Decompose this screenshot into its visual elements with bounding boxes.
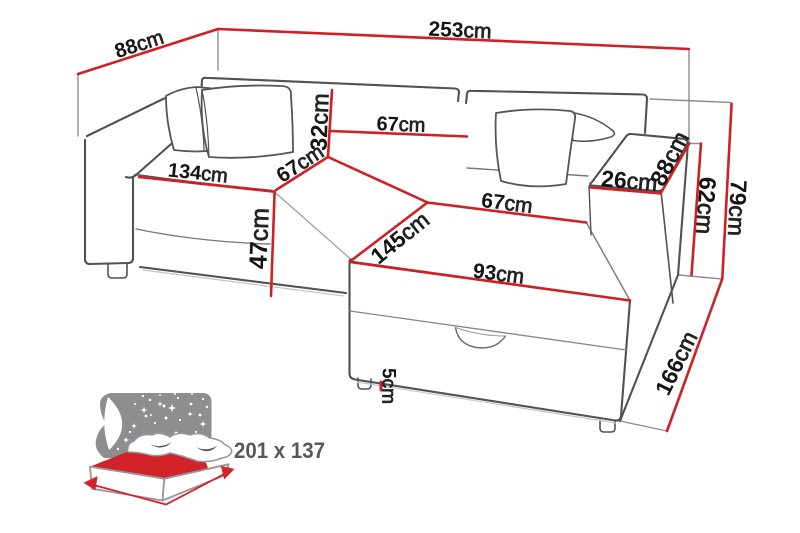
svg-text:67cm: 67cm (376, 113, 426, 137)
svg-text:201 x 137: 201 x 137 (234, 438, 325, 463)
svg-text:47cm: 47cm (244, 207, 274, 269)
svg-text:93cm: 93cm (472, 260, 526, 289)
svg-text:5cm: 5cm (378, 368, 399, 404)
svg-text:79cm: 79cm (723, 179, 752, 237)
svg-text:32cm: 32cm (306, 93, 334, 151)
svg-text:253cm: 253cm (428, 18, 492, 44)
svg-text:88cm: 88cm (112, 26, 167, 63)
svg-text:62cm: 62cm (691, 176, 721, 235)
svg-text:166cm: 166cm (650, 327, 702, 399)
svg-text:134cm: 134cm (167, 159, 229, 187)
svg-text:67cm: 67cm (480, 189, 534, 218)
svg-text:145cm: 145cm (366, 207, 434, 269)
